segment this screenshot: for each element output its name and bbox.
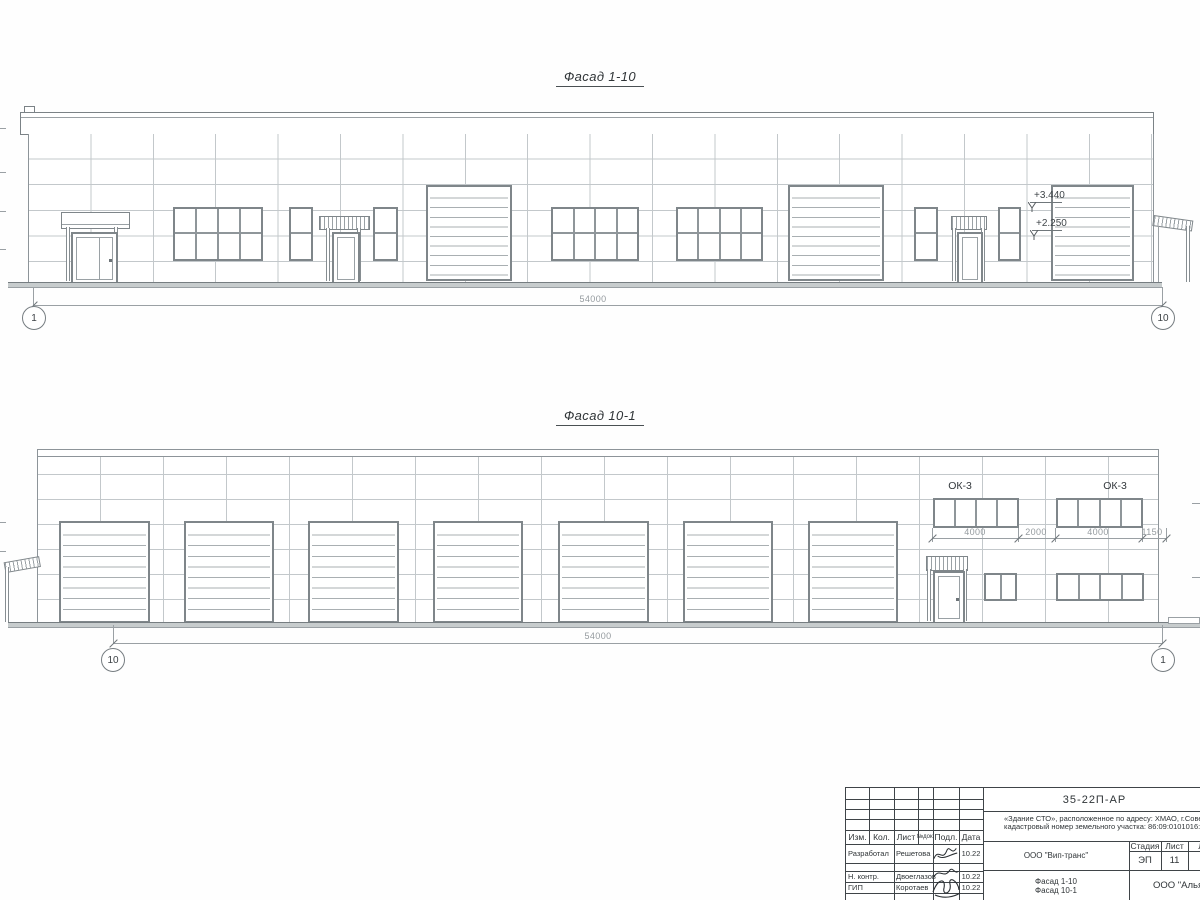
canopy-post — [66, 227, 70, 281]
dimension-value: 4000 — [940, 527, 1010, 537]
window-pane — [1101, 500, 1120, 526]
tb-date: 10.22 — [959, 882, 983, 893]
axis-number: 1 — [1160, 655, 1166, 666]
dim-line — [932, 538, 1166, 539]
facade-1-10-title: Фасад 1-10 — [520, 69, 680, 84]
tb-doc-number: 35-22П-АР — [983, 788, 1200, 811]
axis-number: 10 — [107, 655, 118, 666]
window-pane — [553, 234, 573, 259]
window-pane — [175, 234, 195, 259]
axis-number: 10 — [1157, 313, 1168, 324]
tb-col-list: Лист — [894, 830, 918, 844]
lean-to-roof — [4, 556, 41, 573]
window-pane — [291, 234, 311, 259]
dim-extension — [932, 528, 933, 542]
window-pane — [1002, 575, 1016, 599]
door-handle — [109, 259, 112, 262]
window-pane — [1058, 500, 1077, 526]
dimension-value: 2000 — [1001, 527, 1071, 537]
tb-line — [846, 863, 983, 864]
door-handle — [956, 598, 959, 601]
clipped-mark — [1192, 503, 1200, 504]
entrance-door — [71, 232, 118, 285]
window-pane — [175, 209, 195, 232]
window-pane — [219, 234, 239, 259]
facade-1-10-wall — [28, 134, 1154, 283]
tb-date: 10.22 — [959, 844, 983, 863]
elevation-mark: +3.440 — [1030, 190, 1066, 208]
window-pane — [618, 209, 638, 232]
tb-line — [846, 809, 983, 810]
roller-door — [808, 521, 898, 623]
roller-door — [788, 185, 884, 281]
dim-line — [113, 643, 1162, 644]
tb-sheet-label: Лист — [1161, 841, 1188, 851]
tb-name: Двоеглазов — [896, 871, 933, 882]
facade-10-1-title: Фасад 10-1 — [520, 408, 680, 423]
roller-door-slats — [188, 525, 270, 619]
window-2x4 — [676, 207, 763, 261]
total-dimension: 54000 — [558, 294, 628, 304]
window-pane — [742, 209, 761, 232]
window-pane — [219, 209, 239, 232]
window-pane — [575, 209, 595, 232]
window-pane — [916, 234, 936, 259]
window-pane — [721, 234, 740, 259]
window-pane — [197, 234, 217, 259]
window-narrow — [289, 207, 313, 261]
elevation-value: +2.250 — [1036, 218, 1067, 229]
roller-door — [683, 521, 773, 623]
roller-door-slats — [812, 525, 894, 619]
tb-line — [846, 819, 983, 820]
window-pane — [375, 209, 396, 232]
roller-door-slats — [63, 525, 146, 619]
signature — [930, 876, 962, 899]
door-leaf-split — [99, 237, 100, 280]
canopy-post — [326, 228, 330, 281]
side-door — [332, 232, 360, 285]
tb-line — [983, 811, 1200, 812]
window-mark-label: ОК-3 — [1080, 480, 1150, 492]
window-pane — [1000, 209, 1019, 232]
facade-1-10-title-text: Фасад 1-10 — [556, 69, 644, 87]
roller-door — [59, 521, 150, 623]
ground-line — [8, 622, 1200, 628]
window-pane — [678, 234, 697, 259]
tb-object-description: «Здание СТО», расположенное по адресу: Х… — [1004, 815, 1200, 831]
window-pane — [241, 209, 261, 232]
clipped-mark — [0, 172, 6, 173]
axis-number: 1 — [31, 313, 37, 324]
clipped-mark — [1192, 577, 1200, 578]
tb-role: Н. контр. — [848, 871, 894, 882]
tb-name: Коротаев — [896, 882, 933, 893]
canopy-post — [927, 569, 931, 621]
door-canopy — [926, 556, 968, 571]
tb-col-data: Дата — [959, 830, 983, 844]
window-pane — [1101, 575, 1121, 599]
window-pane — [618, 234, 638, 259]
window-pane — [596, 209, 616, 232]
clipped-mark — [0, 551, 6, 552]
window-pane — [699, 209, 718, 232]
total-dimension: 54000 — [563, 631, 633, 641]
roller-door — [433, 521, 523, 623]
window-2x4 — [173, 207, 263, 261]
window-pane — [197, 209, 217, 232]
entrance-canopy — [61, 212, 130, 229]
tb-content-line1: Фасад 1-10 — [1035, 877, 1077, 886]
ground-line — [8, 282, 1162, 288]
tb-col-izm: Изм. — [846, 830, 869, 844]
door-leaf — [962, 237, 978, 280]
window-ok3 — [933, 498, 1019, 528]
window-pane — [1122, 500, 1141, 526]
tb-name: Решетова — [896, 844, 933, 863]
tb-client: ООО "Вип-транс" — [983, 841, 1129, 870]
window-narrow — [998, 207, 1021, 261]
door-leaf — [337, 237, 355, 280]
clipped-mark — [0, 522, 6, 523]
roller-door-slats — [562, 525, 645, 619]
lean-to-post — [5, 567, 9, 622]
tb-sheet-value: 11 — [1161, 851, 1188, 870]
roller-door — [426, 185, 512, 281]
window-pane — [977, 500, 996, 526]
window-narrow — [373, 207, 398, 261]
canopy-post — [952, 228, 956, 281]
parapet-joint-line — [21, 117, 1153, 118]
tb-col-kol: Кол. — [869, 830, 894, 844]
tb-role: ГИП — [848, 882, 894, 893]
window-ok3 — [1056, 498, 1143, 528]
roller-door-slats — [687, 525, 769, 619]
elevation-arrow-icon — [1028, 202, 1038, 212]
tb-object-line2: кадастровый номер земельного участка: 86… — [1004, 823, 1200, 831]
parapet-joint-line — [38, 450, 1158, 457]
title-block: Изм. Кол. Лист №док. Подл. Дата Разработ… — [845, 787, 1200, 900]
window-mark-label: ОК-3 — [925, 480, 995, 492]
tb-col-podp: Подл. — [933, 830, 959, 844]
axis-bubble-10: 10 — [101, 648, 125, 672]
window-pane — [375, 234, 396, 259]
window-pane — [916, 209, 936, 232]
window-pane — [1058, 575, 1078, 599]
parapet-band — [20, 112, 1154, 135]
window-pane — [742, 234, 761, 259]
window-small — [984, 573, 1017, 601]
window-pane — [721, 209, 740, 232]
tb-col-ndok: №док. — [918, 830, 933, 844]
tb-stage-label: Стадия — [1129, 841, 1161, 851]
clipped-mark — [0, 249, 6, 250]
roller-door — [308, 521, 399, 623]
window-pane — [1123, 575, 1143, 599]
axis-bubble-1: 1 — [22, 306, 46, 330]
window-pane — [596, 234, 616, 259]
tb-stage-value: ЭП — [1129, 851, 1161, 870]
roller-door-slats — [312, 525, 395, 619]
lean-to-edge — [1158, 226, 1159, 282]
tb-role: Разработал — [848, 844, 894, 863]
entrance-door — [933, 571, 965, 624]
window-strip — [1056, 573, 1144, 601]
dimension-value: 1150 — [1117, 527, 1187, 537]
window-pane — [678, 209, 697, 232]
tb-company: ООО "Альян — [1153, 870, 1200, 900]
window-pane — [699, 234, 718, 259]
axis-bubble-1: 1 — [1151, 648, 1175, 672]
tb-line — [846, 799, 983, 800]
window-pane — [956, 500, 975, 526]
window-pane — [1079, 500, 1098, 526]
window-pane — [935, 500, 954, 526]
window-pane — [998, 500, 1017, 526]
facade-10-1-title-text: Фасад 10-1 — [556, 408, 644, 426]
roller-door-slats — [792, 189, 880, 277]
door-leaf — [76, 237, 113, 280]
elevation-mark: +2.250 — [1032, 218, 1068, 236]
signature — [932, 844, 960, 864]
clipped-mark — [0, 211, 6, 212]
window-pane — [1000, 234, 1019, 259]
window-2x4 — [551, 207, 639, 261]
roller-door — [184, 521, 274, 623]
window-pane — [291, 209, 311, 232]
axis-bubble-10: 10 — [1151, 306, 1175, 330]
window-pane — [575, 234, 595, 259]
window-pane — [1080, 575, 1100, 599]
tb-content-line2: Фасад 10-1 — [1035, 886, 1077, 895]
window-narrow — [914, 207, 938, 261]
ramp — [1168, 617, 1200, 624]
tb-date: 10.22 — [959, 871, 983, 882]
side-door — [957, 232, 983, 285]
elevation-value: +3.440 — [1034, 190, 1065, 201]
tb-sheets-label: Л — [1188, 841, 1200, 851]
clipped-mark — [0, 128, 6, 129]
roller-door-slats — [430, 189, 508, 277]
tb-line — [894, 788, 895, 900]
roller-door-slats — [437, 525, 519, 619]
tb-line — [846, 893, 983, 894]
window-pane — [553, 209, 573, 232]
window-pane — [986, 575, 1000, 599]
lean-to-post — [1186, 226, 1190, 282]
roller-door — [558, 521, 649, 623]
elevation-arrow-icon — [1030, 230, 1040, 240]
drawing-sheet: Фасад 1-10 — [0, 0, 1200, 900]
canopy-fascia — [62, 224, 129, 225]
tb-content: Фасад 1-10 Фасад 10-1 — [983, 870, 1129, 900]
dim-line — [33, 305, 1162, 306]
window-pane — [241, 234, 261, 259]
